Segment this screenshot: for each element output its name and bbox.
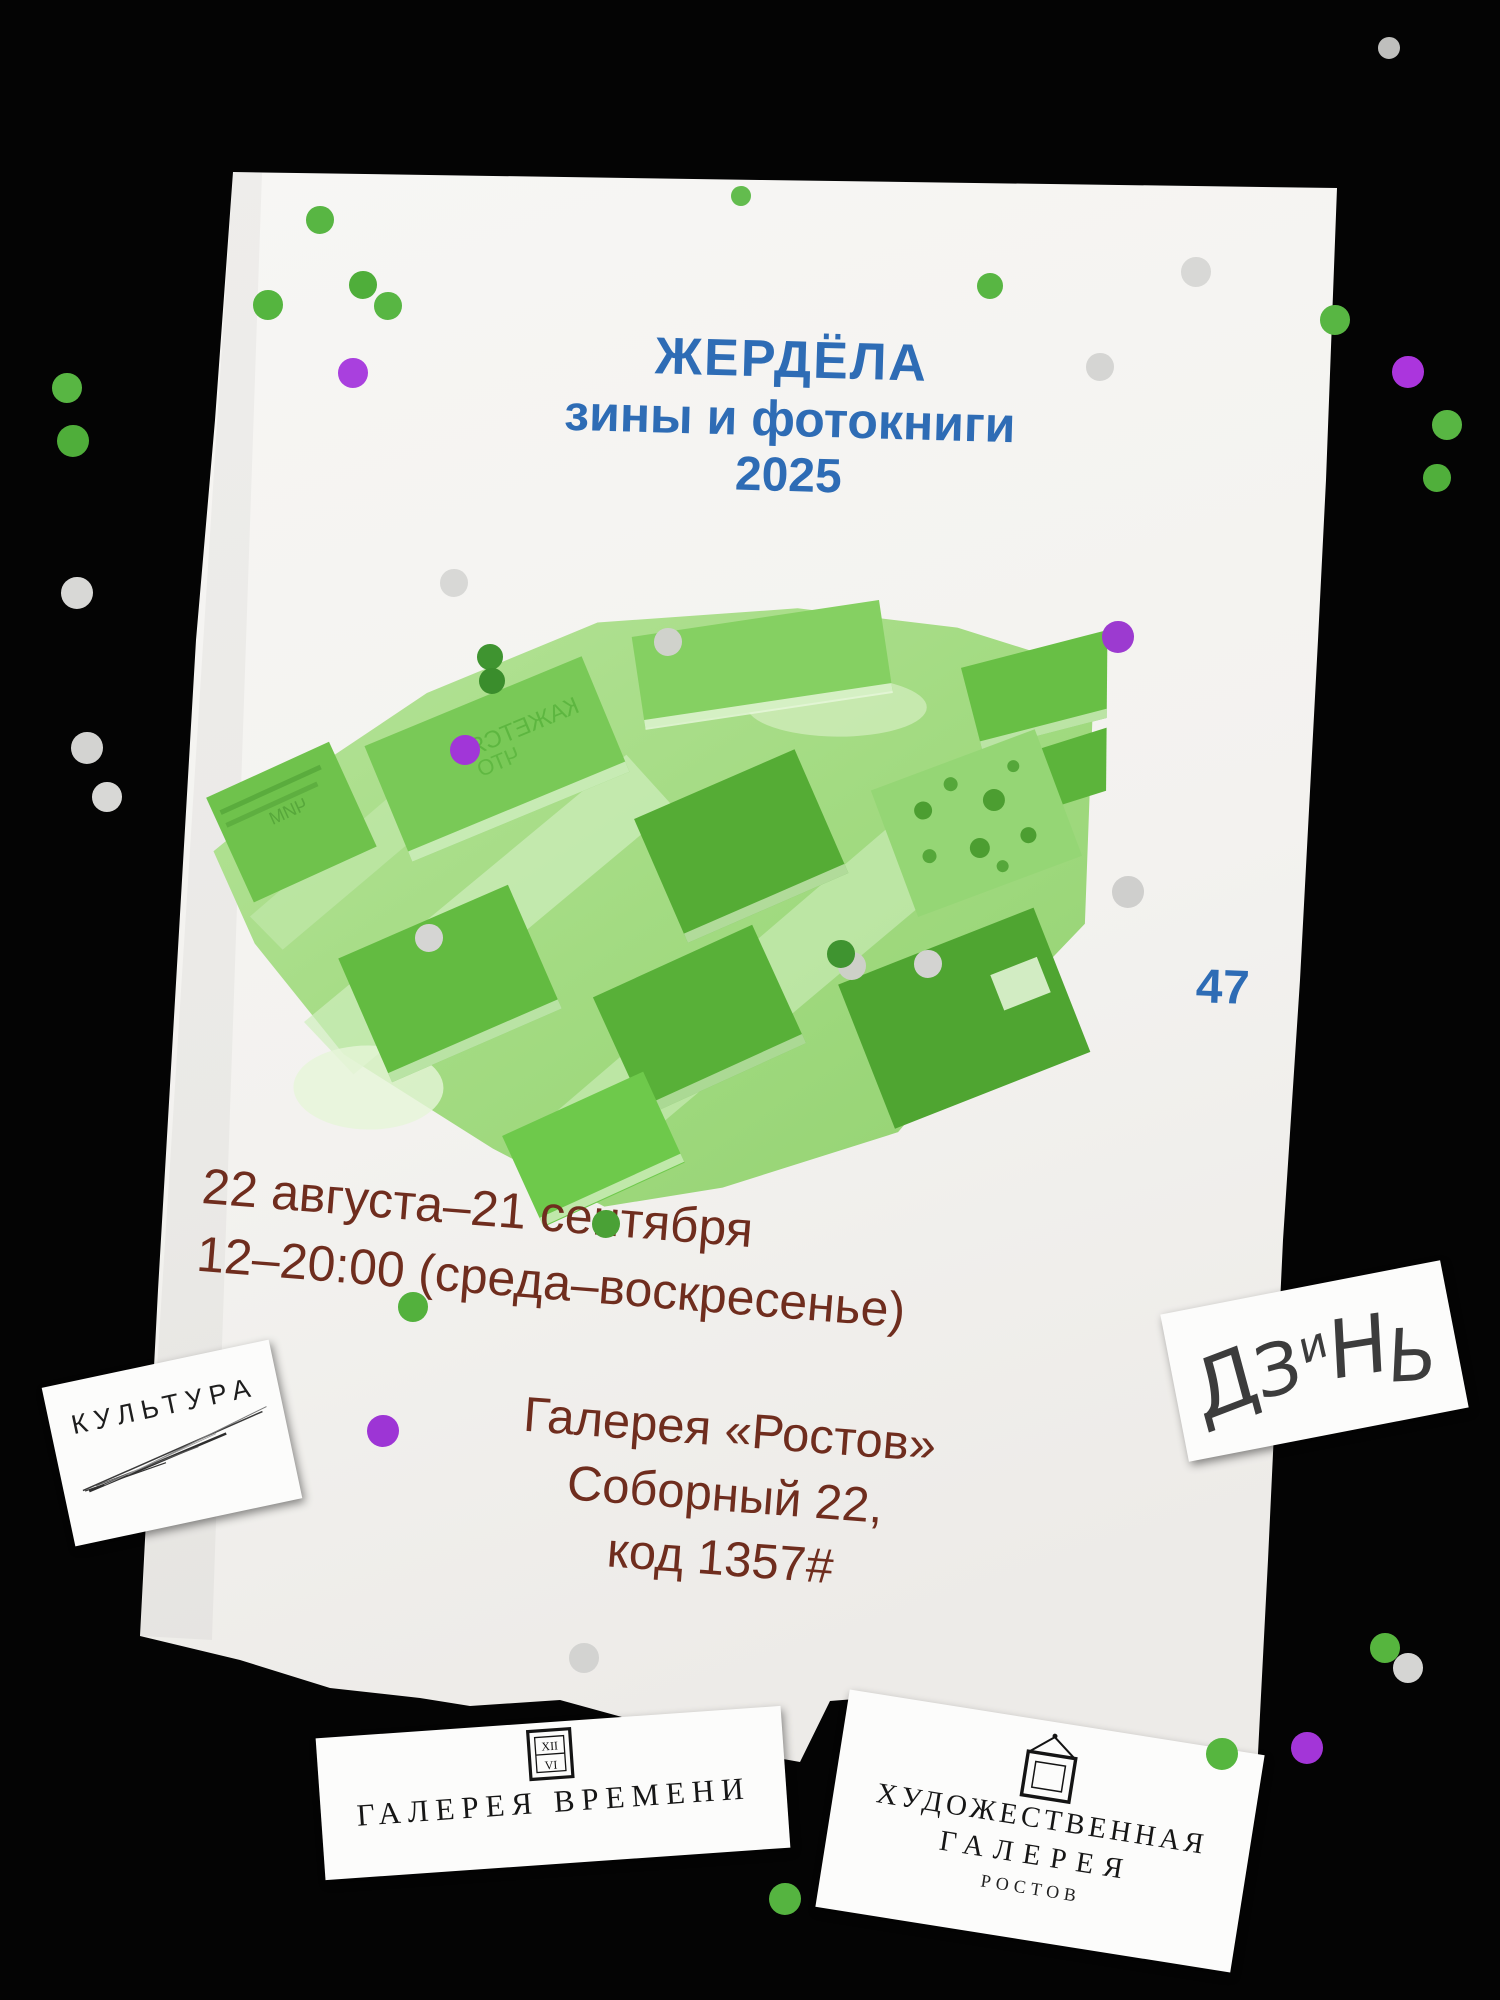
scanned-poster-page: КАЖЕТСЯ ЧТО ЧИМ ЖЕРДЁЛА зины и фотокниги… — [0, 0, 1500, 2000]
zines-photo: КАЖЕТСЯ ЧТО ЧИМ — [192, 581, 1108, 1239]
dzin-handwritten-label: Д З и Н Ь — [1189, 1296, 1440, 1426]
exhibition-title-block: ЖЕРДЁЛА зины и фотокниги 2025 — [428, 320, 1153, 514]
picture-frame-icon — [1013, 1725, 1087, 1806]
clock-window-icon: XII VI — [526, 1727, 576, 1782]
page-number: 47 — [1195, 959, 1250, 1016]
dzin-letter: Ь — [1386, 1317, 1438, 1393]
svg-text:XII: XII — [541, 1739, 559, 1754]
dzin-letter: Н — [1326, 1302, 1389, 1392]
svg-text:VI: VI — [544, 1758, 558, 1773]
